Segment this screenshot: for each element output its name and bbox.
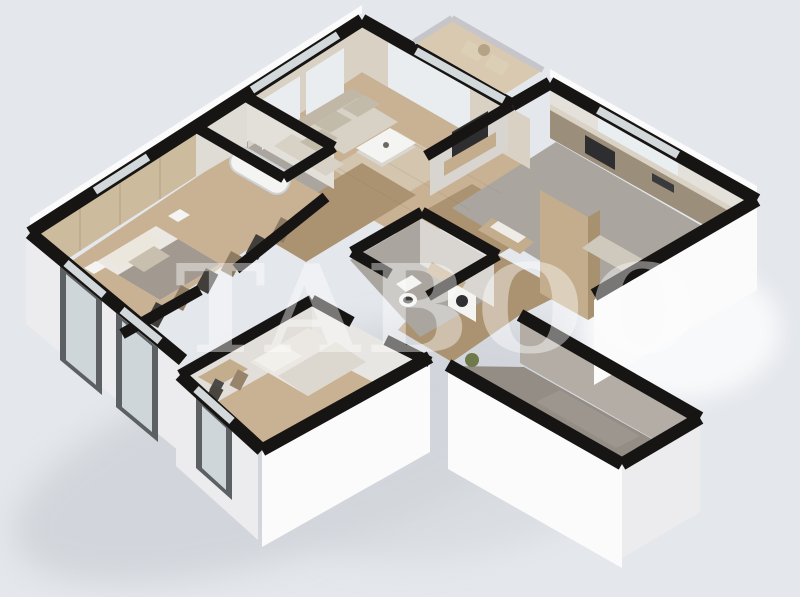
balcony-table [478,44,490,56]
watermark-text: TABOO [175,237,702,381]
floor-plan-render: TABOO [0,0,800,597]
floor-plan-3d-scene: TABOO [0,0,800,597]
table-decor [383,142,389,148]
